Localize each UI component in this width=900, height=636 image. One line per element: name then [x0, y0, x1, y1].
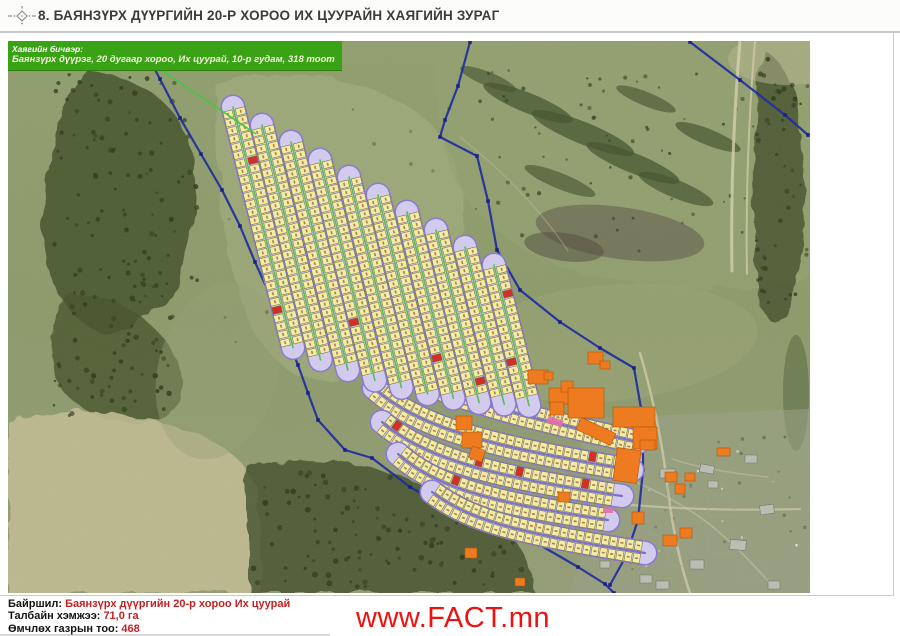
map-container: Хаягийн бичвэр: Баянзүрх дүүрэг, 20 дуга…	[8, 41, 810, 593]
page-title: 8. БАЯНЗҮРХ ДҮҮРГИЙН 20-Р ХОРОО ИХ ЦУУРА…	[38, 8, 499, 23]
title-separator	[0, 31, 900, 33]
website-link[interactable]: www.FACT.mn	[356, 602, 550, 635]
callout-address: Баянзүрх дүүрэг, 20 дугаар хороо, Их цуу…	[12, 54, 334, 66]
satellite-map-image	[8, 41, 810, 593]
area-label: Талбайн хэмжээ:	[8, 610, 100, 622]
address-callout: Хаягийн бичвэр: Баянзүрх дүүрэг, 20 дуга…	[8, 41, 342, 71]
compass-icon	[8, 6, 36, 26]
area-row: Талбайн хэмжээ:71,0 га	[8, 610, 290, 622]
right-border-line	[893, 31, 894, 595]
location-value: Баянзүрх дүүргийн 20-р хороо Их цуурай	[65, 598, 290, 610]
footer-separator	[0, 595, 894, 596]
footer-info: Байршил:Баянзүрх дүүргийн 20-р хороо Их …	[8, 598, 290, 635]
title-bar: 8. БАЯНЗҮРХ ДҮҮРГИЙН 20-Р ХОРОО ИХ ЦУУРА…	[0, 0, 900, 31]
parcel-count-value: 468	[121, 623, 139, 635]
parcel-count-row: Өмчлөх газрын тоо:468	[8, 623, 290, 635]
area-value: 71,0 га	[103, 610, 138, 622]
callout-label: Хаягийн бичвэр:	[12, 44, 334, 54]
location-row: Байршил:Баянзүрх дүүргийн 20-р хороо Их …	[8, 598, 290, 610]
location-label: Байршил:	[8, 598, 62, 610]
page-root: 8. БАЯНЗҮРХ ДҮҮРГИЙН 20-Р ХОРОО ИХ ЦУУРА…	[0, 0, 900, 636]
parcel-count-label: Өмчлөх газрын тоо:	[8, 623, 118, 635]
